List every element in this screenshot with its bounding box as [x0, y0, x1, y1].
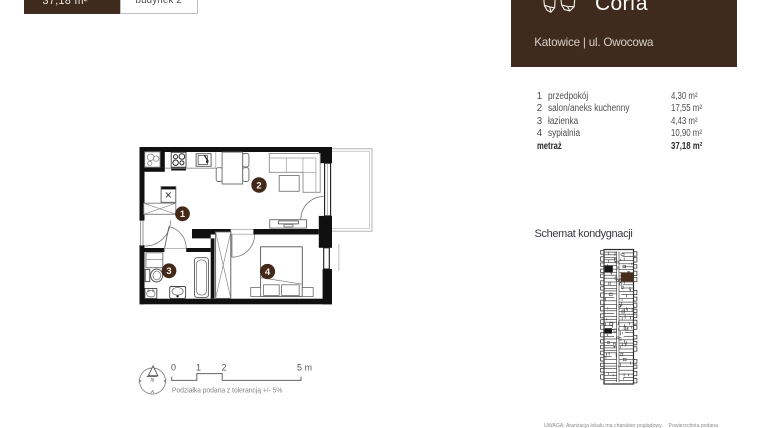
svg-text:4: 4 — [265, 267, 271, 278]
svg-text:N: N — [149, 378, 155, 384]
svg-text:1: 1 — [180, 209, 186, 220]
svg-text:0: 0 — [171, 362, 176, 372]
svg-text:Podziałka podana z tolerancją: Podziałka podana z tolerancją +/- 5% — [172, 387, 282, 394]
svg-text:2: 2 — [221, 362, 226, 372]
svg-text:3: 3 — [166, 266, 171, 277]
svg-text:5 m: 5 m — [297, 362, 312, 372]
svg-text:1: 1 — [196, 362, 201, 372]
svg-text:2: 2 — [256, 180, 261, 191]
